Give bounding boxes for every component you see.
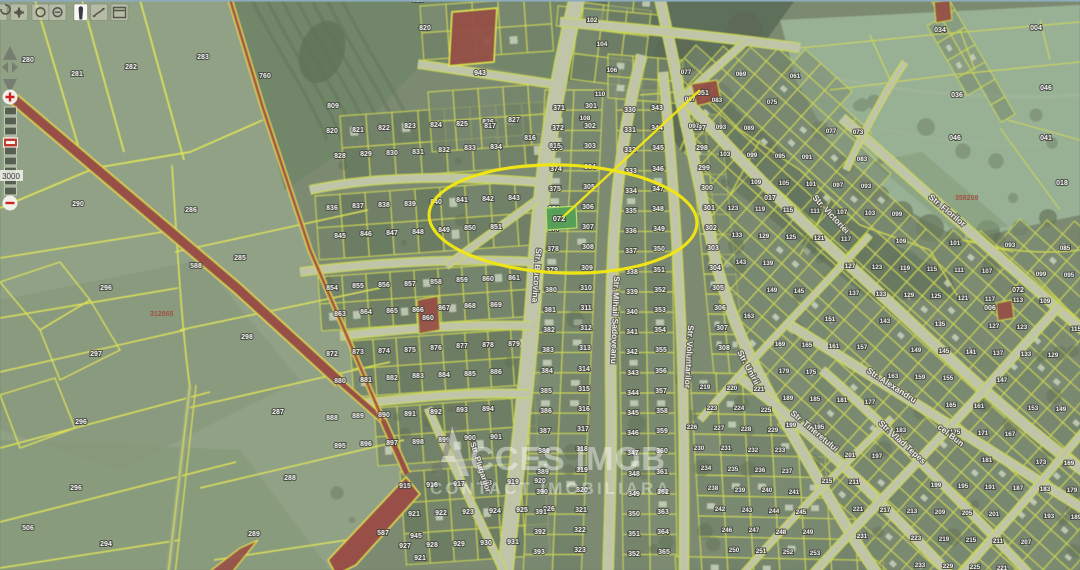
svg-text:117: 117 [985, 296, 996, 303]
svg-text:351: 351 [628, 531, 640, 538]
svg-text:343: 343 [627, 370, 639, 377]
svg-text:111: 111 [954, 267, 964, 274]
svg-text:896: 896 [360, 441, 372, 448]
svg-text:307: 307 [716, 325, 728, 332]
svg-text:309: 309 [581, 265, 593, 272]
svg-text:235: 235 [728, 466, 739, 473]
svg-text:110: 110 [595, 91, 606, 98]
svg-text:181: 181 [982, 457, 993, 464]
svg-text:151: 151 [825, 316, 836, 323]
svg-text:223: 223 [707, 405, 718, 412]
svg-text:209: 209 [935, 509, 946, 516]
svg-text:294: 294 [100, 541, 112, 548]
svg-text:139: 139 [763, 260, 774, 267]
svg-text:245: 245 [796, 509, 807, 516]
svg-text:822: 822 [378, 125, 390, 132]
svg-text:301: 301 [585, 103, 597, 110]
svg-text:244: 244 [769, 508, 780, 515]
svg-text:129: 129 [904, 292, 915, 299]
svg-text:189: 189 [1071, 514, 1080, 521]
svg-text:143: 143 [736, 259, 747, 266]
svg-text:034: 034 [934, 27, 946, 34]
svg-text:250: 250 [729, 547, 740, 554]
svg-text:836: 836 [326, 205, 338, 212]
svg-text:149: 149 [1056, 406, 1067, 413]
svg-text:127: 127 [845, 263, 856, 270]
svg-text:224: 224 [734, 405, 745, 412]
svg-text:587: 587 [377, 530, 389, 537]
svg-text:841: 841 [456, 197, 468, 204]
svg-text:838: 838 [378, 202, 390, 209]
svg-text:353: 353 [654, 307, 666, 314]
svg-text:923: 923 [462, 509, 474, 516]
svg-text:093: 093 [716, 124, 727, 131]
svg-text:193: 193 [1044, 513, 1055, 520]
svg-text:873: 873 [352, 349, 364, 356]
svg-text:315: 315 [578, 386, 590, 393]
svg-text:248: 248 [776, 529, 787, 536]
svg-text:876: 876 [430, 345, 442, 352]
svg-text:297: 297 [90, 351, 102, 358]
svg-text:894: 894 [482, 406, 494, 413]
svg-text:187: 187 [1013, 485, 1024, 492]
svg-text:199: 199 [931, 482, 942, 489]
svg-text:343: 343 [651, 105, 663, 112]
svg-text:831: 831 [412, 149, 424, 156]
svg-text:229: 229 [943, 563, 954, 570]
svg-text:385: 385 [540, 388, 552, 395]
svg-text:004: 004 [1030, 25, 1042, 32]
svg-text:109: 109 [896, 238, 907, 245]
svg-text:077: 077 [826, 128, 837, 135]
svg-text:891: 891 [404, 411, 416, 418]
svg-text:236: 236 [755, 467, 766, 474]
svg-text:881: 881 [360, 377, 372, 384]
svg-text:334: 334 [625, 188, 637, 195]
svg-text:382: 382 [543, 327, 555, 334]
svg-text:924: 924 [489, 508, 501, 515]
svg-text:211: 211 [993, 538, 1004, 545]
svg-text:287: 287 [272, 409, 284, 416]
svg-text:159: 159 [915, 374, 926, 381]
svg-text:221: 221 [997, 565, 1008, 570]
svg-text:872: 872 [326, 351, 338, 358]
svg-text:312: 312 [580, 325, 592, 332]
svg-text:161: 161 [829, 343, 840, 350]
svg-text:149: 149 [911, 347, 922, 354]
svg-text:102: 102 [587, 17, 598, 24]
svg-text:358209: 358209 [955, 195, 978, 202]
svg-text:378: 378 [547, 246, 559, 253]
svg-text:231: 231 [721, 445, 732, 452]
svg-text:153: 153 [1028, 405, 1039, 412]
svg-text:298: 298 [241, 334, 253, 341]
svg-text:161: 161 [974, 403, 985, 410]
svg-text:141: 141 [966, 349, 977, 356]
svg-text:820: 820 [419, 25, 431, 32]
svg-text:339: 339 [626, 289, 638, 296]
svg-text:824: 824 [430, 122, 442, 129]
svg-text:133: 133 [1021, 351, 1032, 358]
svg-text:093: 093 [861, 183, 872, 190]
svg-text:848: 848 [412, 229, 424, 236]
svg-text:207: 207 [1021, 539, 1032, 546]
svg-text:356: 356 [655, 368, 667, 375]
svg-text:842: 842 [482, 196, 494, 203]
svg-text:123: 123 [872, 264, 883, 271]
svg-text:864: 864 [360, 309, 372, 316]
svg-text:157: 157 [857, 344, 868, 351]
svg-text:251: 251 [756, 548, 767, 555]
svg-text:097: 097 [689, 123, 700, 130]
svg-text:304: 304 [709, 265, 721, 272]
svg-text:875: 875 [404, 347, 416, 354]
svg-text:345: 345 [652, 145, 664, 152]
svg-text:349: 349 [653, 226, 665, 233]
svg-text:215: 215 [822, 478, 833, 485]
svg-text:155: 155 [943, 375, 954, 382]
svg-text:880: 880 [334, 378, 346, 385]
svg-text:809: 809 [327, 103, 339, 110]
svg-text:834: 834 [490, 144, 502, 151]
svg-text:290: 290 [72, 201, 84, 208]
svg-text:854: 854 [326, 285, 338, 292]
svg-text:886: 886 [490, 369, 502, 376]
svg-text:233: 233 [915, 562, 926, 569]
svg-text:860: 860 [422, 315, 434, 322]
svg-text:895: 895 [334, 443, 346, 450]
svg-text:169: 169 [1064, 460, 1075, 467]
svg-text:289: 289 [248, 531, 260, 538]
svg-text:201: 201 [845, 452, 856, 459]
svg-text:101: 101 [950, 240, 961, 247]
svg-text:105: 105 [779, 180, 790, 187]
svg-text:885: 885 [464, 371, 476, 378]
svg-text:303: 303 [707, 245, 719, 252]
svg-text:851: 851 [490, 224, 502, 231]
svg-text:352: 352 [628, 551, 640, 558]
svg-text:351: 351 [653, 267, 665, 274]
svg-text:234: 234 [701, 465, 712, 472]
svg-text:167: 167 [1005, 431, 1016, 438]
svg-text:878: 878 [482, 342, 494, 349]
svg-text:859: 859 [456, 277, 468, 284]
svg-text:085: 085 [1060, 245, 1071, 252]
svg-text:199: 199 [786, 422, 797, 429]
svg-text:868: 868 [464, 303, 476, 310]
svg-text:221: 221 [853, 506, 864, 513]
svg-text:104: 104 [597, 41, 608, 48]
svg-text:147: 147 [997, 377, 1008, 384]
svg-text:312865: 312865 [150, 311, 173, 318]
svg-text:099: 099 [892, 211, 903, 218]
svg-text:117: 117 [841, 236, 852, 243]
svg-text:179: 179 [1067, 487, 1078, 494]
svg-text:858: 858 [430, 279, 442, 286]
svg-text:229: 229 [768, 427, 779, 434]
svg-text:223: 223 [911, 535, 922, 542]
svg-text:888: 888 [326, 415, 338, 422]
svg-text:127: 127 [989, 323, 1000, 330]
svg-text:372: 372 [552, 125, 564, 132]
svg-text:288: 288 [284, 475, 296, 482]
svg-text:252: 252 [783, 549, 794, 556]
svg-text:839: 839 [404, 201, 416, 208]
svg-text:943: 943 [474, 70, 486, 77]
svg-text:883: 883 [412, 373, 424, 380]
svg-text:850: 850 [464, 225, 476, 232]
svg-text:350: 350 [653, 246, 665, 253]
svg-text:381: 381 [544, 307, 556, 314]
svg-text:280: 280 [22, 57, 34, 64]
svg-text:296: 296 [75, 419, 87, 426]
svg-text:281: 281 [71, 71, 83, 78]
svg-text:181: 181 [837, 397, 848, 404]
svg-text:211: 211 [849, 479, 860, 486]
svg-text:189: 189 [783, 395, 794, 402]
svg-text:298: 298 [696, 145, 708, 152]
svg-text:173: 173 [1036, 459, 1047, 466]
svg-text:827: 827 [508, 117, 520, 124]
svg-text:017: 017 [764, 195, 776, 202]
svg-text:247: 247 [749, 527, 760, 534]
svg-text:331: 331 [624, 127, 636, 134]
svg-text:945: 945 [410, 533, 422, 540]
svg-text:371: 371 [553, 105, 565, 112]
svg-text:169: 169 [775, 341, 786, 348]
svg-text:314: 314 [578, 366, 590, 373]
svg-text:884: 884 [438, 372, 450, 379]
svg-text:121: 121 [958, 295, 969, 302]
svg-text:898: 898 [412, 439, 424, 446]
svg-text:246: 246 [722, 527, 733, 534]
svg-text:129: 129 [759, 233, 770, 240]
svg-text:109: 109 [1040, 298, 1051, 305]
svg-text:233: 233 [775, 447, 786, 454]
svg-text:113: 113 [1013, 297, 1024, 304]
svg-text:121: 121 [814, 235, 825, 242]
svg-text:307: 307 [582, 224, 594, 231]
svg-text:165: 165 [802, 342, 813, 349]
svg-text:069: 069 [736, 71, 747, 78]
svg-text:317: 317 [577, 426, 589, 433]
svg-text:821: 821 [352, 127, 364, 134]
svg-text:197: 197 [872, 453, 883, 460]
svg-text:346: 346 [627, 430, 639, 437]
svg-text:322: 322 [574, 527, 586, 534]
svg-text:183: 183 [1040, 486, 1051, 493]
svg-text:253: 253 [810, 550, 821, 557]
svg-text:308: 308 [582, 244, 594, 251]
svg-text:845: 845 [334, 233, 346, 240]
svg-text:095: 095 [775, 153, 786, 160]
svg-text:310: 310 [580, 285, 592, 292]
svg-text:830: 830 [386, 150, 398, 157]
svg-text:108: 108 [580, 115, 591, 122]
svg-text:225: 225 [970, 564, 981, 570]
svg-text:330: 330 [624, 107, 636, 114]
svg-text:137: 137 [849, 290, 860, 297]
svg-text:338: 338 [626, 269, 638, 276]
svg-text:101: 101 [806, 181, 817, 188]
svg-text:323: 323 [574, 547, 586, 554]
svg-text:874: 874 [378, 348, 390, 355]
svg-text:306: 306 [582, 204, 594, 211]
svg-text:133: 133 [876, 291, 887, 298]
svg-text:240: 240 [762, 487, 773, 494]
svg-text:832: 832 [438, 147, 450, 154]
svg-text:095: 095 [1064, 272, 1075, 279]
svg-text:103: 103 [865, 210, 876, 217]
svg-text:107: 107 [982, 268, 993, 275]
svg-text:825: 825 [456, 121, 468, 128]
svg-text:115: 115 [1071, 326, 1080, 333]
svg-text:358: 358 [656, 408, 668, 415]
svg-text:179: 179 [779, 368, 790, 375]
svg-text:364: 364 [657, 529, 669, 536]
svg-text:093: 093 [1005, 242, 1016, 249]
svg-text:225: 225 [761, 407, 772, 414]
svg-text:341: 341 [626, 329, 638, 336]
svg-text:036: 036 [951, 92, 963, 99]
svg-text:115: 115 [783, 207, 794, 214]
svg-text:103: 103 [720, 151, 731, 158]
svg-text:392: 392 [534, 529, 546, 536]
svg-text:217: 217 [880, 507, 891, 514]
svg-text:097: 097 [833, 182, 844, 189]
svg-text:286: 286 [185, 207, 197, 214]
svg-text:846: 846 [360, 231, 372, 238]
svg-text:897: 897 [386, 440, 398, 447]
svg-text:242: 242 [715, 506, 726, 513]
svg-text:823: 823 [404, 123, 416, 130]
svg-text:099: 099 [747, 152, 758, 159]
svg-text:820: 820 [326, 128, 338, 135]
svg-text:336: 336 [625, 228, 637, 235]
svg-text:231: 231 [857, 533, 868, 540]
svg-text:882: 882 [386, 375, 398, 382]
svg-text:283: 283 [197, 54, 209, 61]
svg-text:241: 241 [789, 489, 800, 496]
svg-text:890: 890 [378, 412, 390, 419]
svg-text:857: 857 [404, 281, 416, 288]
svg-text:143: 143 [880, 318, 891, 325]
svg-text:365: 365 [658, 549, 670, 556]
svg-text:311: 311 [580, 305, 591, 312]
svg-text:308: 308 [718, 345, 730, 352]
svg-text:930: 930 [480, 540, 492, 547]
svg-text:346: 346 [652, 166, 664, 173]
svg-text:125: 125 [931, 293, 942, 300]
svg-text:893: 893 [456, 407, 468, 414]
svg-text:391: 391 [535, 509, 547, 516]
svg-text:316: 316 [578, 406, 590, 413]
svg-text:829: 829 [360, 151, 372, 158]
svg-text:380: 380 [545, 287, 557, 294]
svg-text:342: 342 [626, 349, 638, 356]
svg-text:237: 237 [782, 468, 793, 475]
svg-text:221: 221 [754, 386, 765, 393]
svg-text:145: 145 [794, 288, 805, 295]
svg-text:213: 213 [907, 508, 918, 515]
svg-text:855: 855 [352, 283, 364, 290]
svg-text:296: 296 [70, 485, 82, 492]
svg-text:302: 302 [584, 123, 596, 130]
svg-text:046: 046 [949, 135, 961, 142]
svg-text:352: 352 [654, 287, 666, 294]
svg-text:922: 922 [435, 510, 447, 517]
svg-text:860: 860 [482, 276, 494, 283]
svg-text:588: 588 [190, 263, 202, 270]
svg-text:109: 109 [751, 179, 762, 186]
svg-text:393: 393 [533, 549, 545, 556]
svg-text:335: 335 [625, 208, 637, 215]
svg-text:305: 305 [712, 285, 724, 292]
svg-text:892: 892 [430, 409, 442, 416]
svg-text:238: 238 [708, 485, 719, 492]
svg-text:201: 201 [989, 511, 1000, 518]
svg-text:921: 921 [414, 555, 426, 562]
svg-text:877: 877 [456, 343, 468, 350]
svg-text:041: 041 [1040, 135, 1052, 142]
svg-text:123: 123 [1017, 324, 1028, 331]
svg-text:375: 375 [549, 186, 561, 193]
svg-text:232: 232 [748, 447, 759, 454]
svg-text:227: 227 [714, 425, 725, 432]
svg-text:3000: 3000 [2, 172, 20, 181]
svg-text:313: 313 [579, 345, 591, 352]
svg-text:869: 869 [490, 302, 502, 309]
svg-text:849: 849 [438, 227, 450, 234]
svg-text:833: 833 [464, 145, 476, 152]
svg-text:345: 345 [627, 410, 639, 417]
svg-text:171: 171 [978, 430, 989, 437]
svg-text:205: 205 [962, 510, 973, 517]
svg-text:915: 915 [399, 483, 411, 490]
svg-text:928: 928 [426, 542, 438, 549]
svg-text:018: 018 [1056, 180, 1068, 187]
svg-text:355: 355 [655, 347, 667, 354]
svg-text:249: 249 [803, 529, 814, 536]
svg-text:129: 129 [1048, 352, 1059, 359]
svg-text:165: 165 [946, 402, 957, 409]
svg-text:866: 866 [412, 307, 424, 314]
svg-text:843: 843 [508, 195, 520, 202]
svg-text:089: 089 [744, 125, 755, 132]
svg-text:119: 119 [755, 206, 766, 213]
svg-text:220: 220 [727, 385, 738, 392]
svg-text:301: 301 [703, 205, 715, 212]
svg-text:083: 083 [857, 156, 868, 163]
svg-text:348: 348 [652, 206, 664, 213]
svg-text:230: 230 [694, 445, 705, 452]
svg-text:125: 125 [786, 234, 797, 241]
svg-text:837: 837 [352, 203, 364, 210]
svg-text:828: 828 [334, 153, 346, 160]
svg-text:191: 191 [985, 484, 996, 491]
svg-text:282: 282 [125, 64, 137, 71]
svg-text:219: 219 [700, 384, 711, 391]
svg-text:300: 300 [701, 185, 713, 192]
svg-text:072: 072 [1012, 287, 1024, 294]
svg-text:215: 215 [966, 537, 977, 544]
svg-text:344: 344 [627, 390, 639, 397]
svg-text:889: 889 [352, 413, 364, 420]
svg-text:285: 285 [234, 255, 246, 262]
svg-text:861: 861 [508, 275, 520, 282]
svg-text:239: 239 [735, 487, 746, 494]
svg-text:856: 856 [378, 282, 390, 289]
